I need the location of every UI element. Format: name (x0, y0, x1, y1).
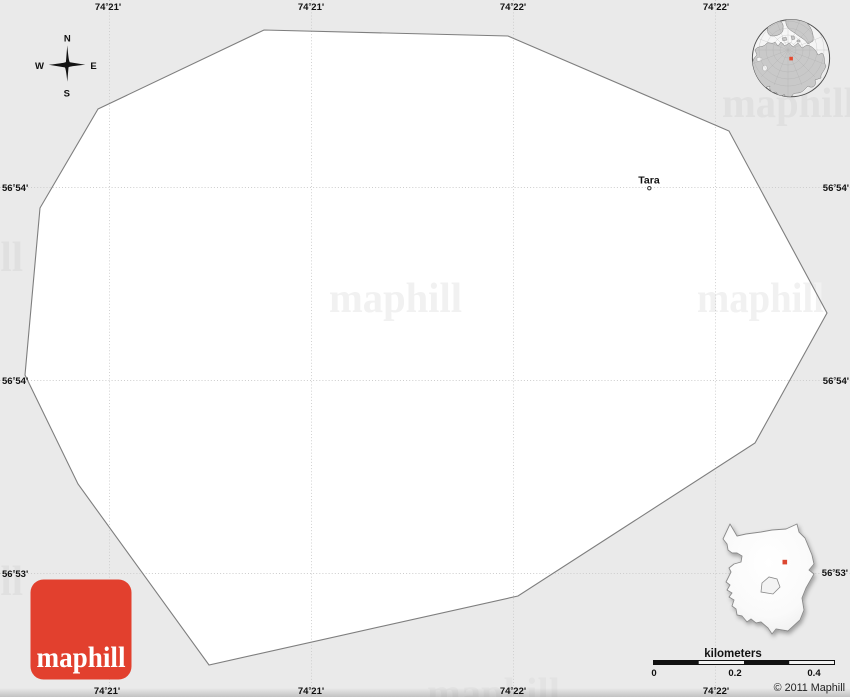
svg-text:N: N (64, 34, 71, 45)
svg-text:kilometers: kilometers (704, 648, 762, 660)
svg-text:56°53': 56°53' (822, 568, 848, 579)
svg-text:maphill: maphill (37, 641, 126, 674)
svg-text:E: E (90, 61, 96, 72)
svg-text:W: W (35, 61, 44, 72)
svg-text:56°53': 56°53' (2, 569, 28, 580)
svg-text:56°54': 56°54' (823, 376, 849, 387)
svg-text:0: 0 (651, 668, 656, 679)
svg-text:maphill: maphill (0, 235, 23, 281)
svg-text:0.4: 0.4 (807, 668, 821, 679)
svg-text:56°54': 56°54' (2, 376, 28, 387)
svg-text:Tara: Tara (638, 175, 660, 187)
svg-text:0.2: 0.2 (728, 668, 741, 679)
svg-text:56°54': 56°54' (2, 183, 28, 194)
svg-text:74°22': 74°22' (703, 2, 729, 13)
svg-text:S: S (64, 89, 70, 100)
svg-text:74°21': 74°21' (298, 2, 324, 13)
svg-text:74°22': 74°22' (500, 2, 526, 13)
svg-text:maphill: maphill (697, 276, 824, 322)
svg-text:56°54': 56°54' (823, 183, 849, 194)
svg-text:maphill: maphill (0, 559, 23, 605)
svg-text:74°21': 74°21' (95, 2, 121, 13)
svg-text:maphill: maphill (329, 276, 462, 322)
